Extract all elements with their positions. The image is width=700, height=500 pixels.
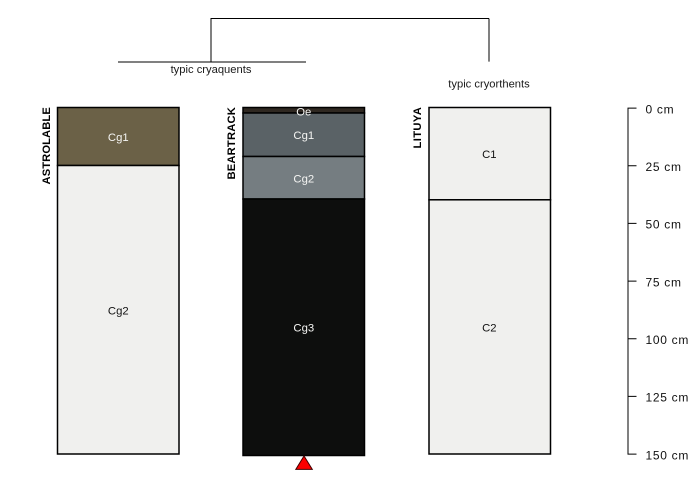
svg-text:C1: C1 — [482, 149, 496, 161]
svg-text:Cg1: Cg1 — [293, 130, 314, 142]
svg-text:25 cm: 25 cm — [646, 160, 682, 174]
svg-text:typic cryorthents: typic cryorthents — [448, 79, 530, 91]
svg-text:Oe: Oe — [296, 107, 311, 119]
svg-text:BEARTRACK: BEARTRACK — [226, 107, 238, 179]
svg-text:100 cm: 100 cm — [646, 333, 690, 347]
svg-text:Cg2: Cg2 — [108, 305, 129, 317]
svg-text:0 cm: 0 cm — [646, 102, 675, 116]
svg-text:Cg1: Cg1 — [108, 132, 129, 144]
svg-text:typic cryaquents: typic cryaquents — [171, 64, 252, 76]
svg-text:150 cm: 150 cm — [646, 448, 690, 462]
svg-text:75 cm: 75 cm — [646, 275, 682, 289]
svg-text:LITUYA: LITUYA — [412, 107, 424, 148]
svg-text:Cg2: Cg2 — [293, 173, 314, 185]
svg-text:125 cm: 125 cm — [646, 391, 690, 405]
svg-text:ASTROLABLE: ASTROLABLE — [41, 107, 53, 185]
svg-text:Cg3: Cg3 — [293, 323, 314, 335]
svg-text:50 cm: 50 cm — [646, 218, 682, 232]
svg-text:C2: C2 — [482, 322, 496, 334]
